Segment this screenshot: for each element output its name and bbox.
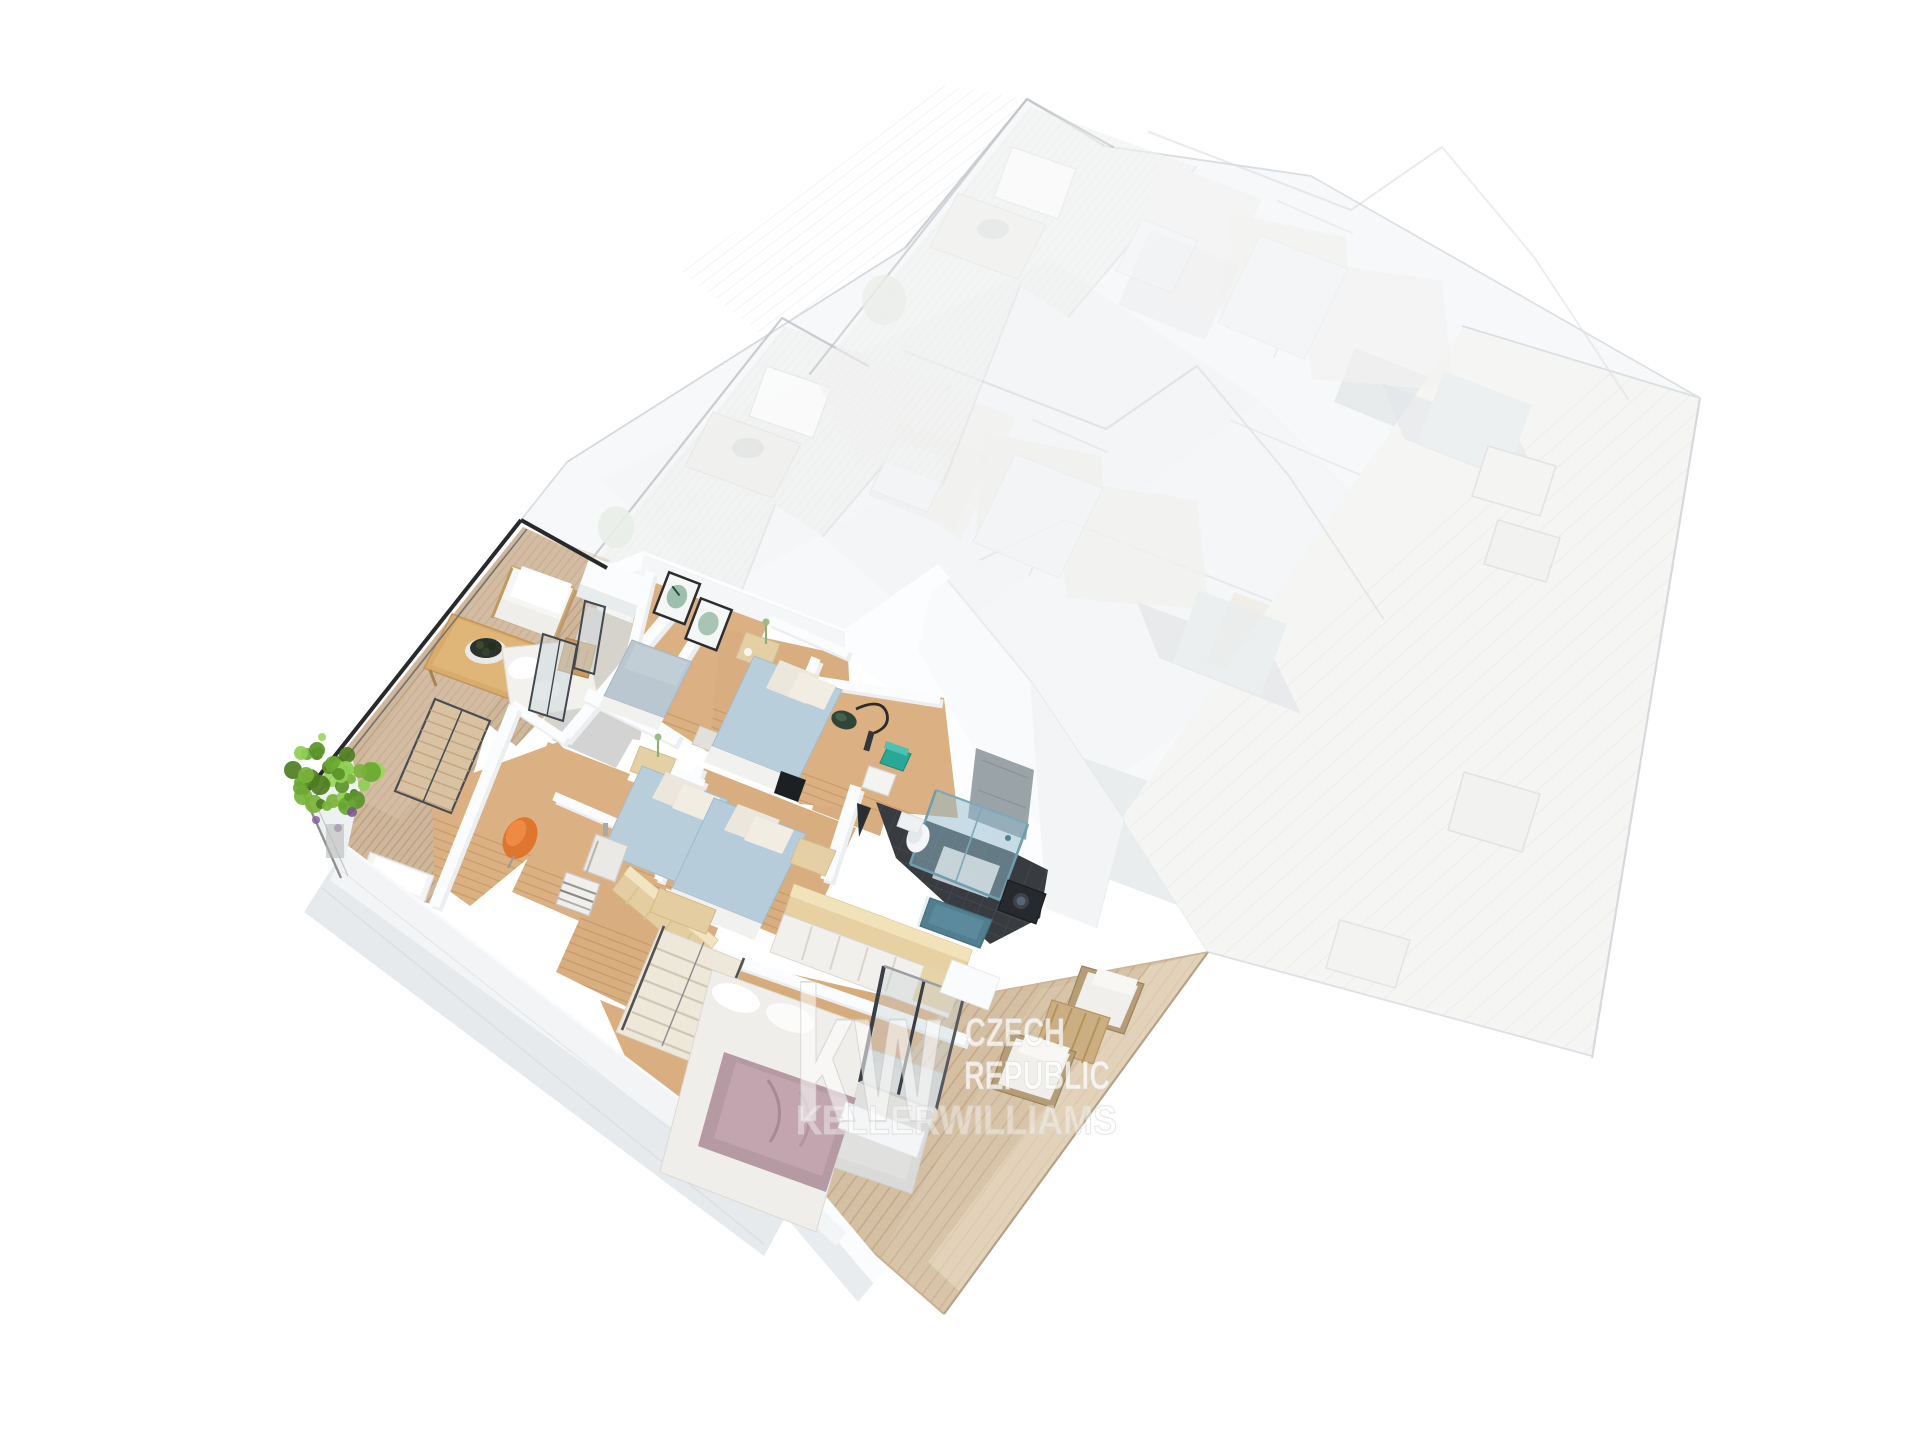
svg-text:REPUBLIC: REPUBLIC <box>964 1054 1110 1098</box>
svg-text:CZECH: CZECH <box>965 1011 1065 1055</box>
svg-text:KELLERWILLIAMS: KELLERWILLIAMS <box>796 1097 1117 1143</box>
